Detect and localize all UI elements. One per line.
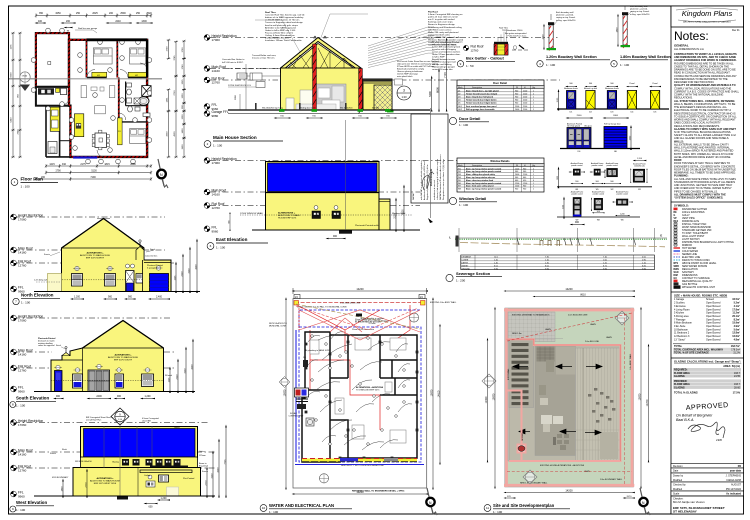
svg-text:28.60: 28.60: [734, 387, 741, 390]
svg-text:D4: D4: [458, 100, 460, 102]
svg-text:1: 1: [533, 100, 534, 102]
svg-text:LAWN: LAWN: [545, 328, 551, 331]
svg-text:PW 14/7/2024: PW 14/7/2024: [726, 488, 742, 491]
svg-text:SYMBOLS:: SYMBOLS:: [674, 204, 689, 208]
svg-text:N: N: [642, 501, 645, 505]
svg-text:ERF 5075 WEST SIDE: ERF 5075 WEST SIDE: [94, 483, 117, 485]
svg-text:7715: 7715: [443, 72, 447, 78]
svg-text:10: 10: [262, 506, 266, 510]
svg-text:Flat Roof:: Flat Roof:: [428, 11, 438, 14]
svg-text:Box gutter waterproofed: Box gutter waterproofed: [505, 32, 526, 35]
svg-text:W2: W2: [458, 171, 461, 173]
svg-text:N: N: [160, 173, 163, 177]
svg-text:Fascia: Fascia: [50, 453, 57, 455]
svg-text:1315: 1315: [182, 79, 184, 85]
svg-text:1 : 100: 1 : 100: [459, 203, 469, 207]
svg-text:9960: 9960: [18, 495, 25, 499]
svg-text:NEW 1.8m: NEW 1.8m: [512, 333, 522, 335]
svg-text:1: 1: [533, 189, 534, 191]
svg-text:Eng detail: Eng detail: [199, 464, 208, 467]
svg-text:brandering with cornices: brandering with cornices: [265, 37, 290, 40]
svg-text:1: 1: [533, 97, 534, 99]
svg-text:All timber to be SABS approved: All timber to be SABS approved: [265, 26, 297, 29]
svg-text:VP: VP: [674, 218, 678, 220]
svg-text:900: 900: [610, 181, 613, 183]
svg-text:1 : 100: 1 : 100: [21, 301, 31, 305]
svg-text:powder coated: powder coated: [606, 164, 617, 167]
svg-text:900: 900: [515, 93, 518, 95]
svg-text:2100: 2100: [523, 93, 527, 95]
svg-text:1.00: 1.00: [603, 260, 607, 262]
svg-text:TO DWELLING ERF 5075: TO DWELLING ERF 5075: [356, 390, 380, 392]
svg-text:Alum. top hung window powder c: Alum. top hung window powder coated: [466, 188, 502, 191]
svg-text:1 : 100: 1 : 100: [216, 246, 226, 250]
svg-text:Scale: Scale: [673, 493, 680, 496]
svg-text:2220: 2220: [176, 374, 178, 380]
svg-text:3130: 3130: [394, 213, 396, 219]
svg-text:D1: D1: [458, 90, 460, 92]
svg-text:ALTERATIONS +: ALTERATIONS +: [278, 212, 296, 215]
svg-text:onto splash block: onto splash block: [397, 75, 412, 78]
svg-text:4530: 4530: [174, 131, 176, 137]
svg-text:1125: 1125: [168, 377, 170, 382]
svg-text:SWD: SWD: [674, 266, 680, 268]
svg-text:TOTAL % OF SITE COVERAGE: TOTAL % OF SITE COVERAGE: [674, 352, 709, 355]
svg-text:2100: 2100: [523, 100, 527, 102]
svg-text:9.96: 9.96: [603, 268, 607, 270]
svg-text:GD2: GD2: [458, 109, 462, 111]
svg-text:Alum. sliding door glazed safe: Alum. sliding door glazed safety: [466, 173, 496, 176]
svg-text:14160: 14160: [18, 353, 27, 357]
svg-text:1.35: 1.35: [545, 262, 549, 264]
svg-text:900: 900: [333, 235, 338, 238]
svg-text:“SYSTEM SALES OFFICE” GUIDELIN: “SYSTEM SALES OFFICE” GUIDELINES.: [674, 196, 724, 200]
svg-text:14200: 14200: [565, 287, 573, 291]
svg-text:RWG: RWG: [674, 269, 680, 271]
svg-text:Modified: Modified: [673, 488, 683, 491]
svg-text:DISTANCE: DISTANCE: [462, 256, 472, 259]
svg-text:4200: 4200: [191, 364, 193, 370]
svg-text:W4: W4: [575, 189, 578, 191]
svg-text:RETICULATION TO: RETICULATION TO: [269, 322, 287, 325]
svg-text:powder coated: powder coated: [571, 193, 582, 196]
svg-text:2710: 2710: [174, 90, 176, 96]
svg-text:11.2m²: 11.2m²: [732, 311, 740, 315]
svg-text:12760: 12760: [18, 369, 27, 373]
svg-text:14610: 14610: [437, 390, 440, 397]
svg-text:900: 900: [128, 296, 133, 299]
svg-text:1 : 100: 1 : 100: [16, 508, 26, 512]
svg-text:7.35: 7.35: [545, 257, 549, 259]
svg-text:sheet IBR: sheet IBR: [142, 419, 151, 422]
svg-text:1800: 1800: [616, 27, 618, 33]
svg-text:powder coated: powder coated: [571, 164, 582, 167]
svg-text:12760: 12760: [212, 206, 221, 210]
svg-text:DEPTH: DEPTH: [462, 262, 469, 264]
svg-text:1 : 100: 1 : 100: [269, 510, 279, 514]
svg-text:coping on top. Found.: coping on top. Found.: [630, 10, 650, 13]
svg-text:W4 2400x900 top hung: W4 2400x900 top hung: [262, 107, 283, 110]
svg-text:9.96: 9.96: [494, 268, 498, 270]
svg-text:EXISTING HOUSE ALTERATIONS + A: EXISTING HOUSE ALTERATIONS + ADDITIONS: [540, 464, 585, 467]
svg-text:Architectural Profession Act 4: Architectural Profession Act 44 of 2000 …: [423, 162, 426, 200]
svg-text:CAD&A 02/08: CAD&A 02/08: [726, 479, 741, 482]
svg-text:South Elevation: South Elevation: [16, 396, 49, 401]
svg-text:24.55: 24.55: [734, 375, 741, 378]
svg-text:1 : 100: 1 : 100: [16, 404, 26, 408]
svg-text:2100: 2100: [523, 97, 527, 99]
svg-text:450: 450: [523, 180, 526, 182]
svg-text:1.80m Boudary Wall Section: 1.80m Boudary Wall Section: [620, 55, 671, 59]
svg-text:D5: D5: [458, 103, 460, 105]
svg-text:400: 400: [38, 20, 43, 23]
svg-text:Mrs M Jantjie van Vuuren: Mrs M Jantjie van Vuuren: [673, 500, 705, 504]
svg-text:900: 900: [108, 296, 113, 299]
svg-text:2: 2: [533, 93, 534, 95]
svg-text:125mm: 125mm: [199, 455, 206, 457]
svg-text:Baai B.K.A.: Baai B.K.A.: [676, 418, 694, 422]
svg-text:12760: 12760: [212, 81, 221, 85]
svg-text:1: 1: [533, 186, 534, 188]
svg-text:14160: 14160: [212, 69, 221, 73]
svg-text:1.8m BDRY WALL: 1.8m BDRY WALL: [629, 353, 632, 370]
svg-text:Roof line over garage: Roof line over garage: [78, 28, 98, 30]
svg-text:6: 6: [533, 180, 534, 182]
svg-text:900: 900: [515, 177, 518, 179]
svg-text:2500: 2500: [515, 106, 519, 108]
svg-text:34.5m²: 34.5m²: [732, 297, 740, 301]
svg-text:Alum. clerestory window fixed: Alum. clerestory window fixed: [466, 179, 494, 182]
svg-text:W4: W4: [458, 177, 461, 179]
svg-text:undertaken at own risk: undertaken at own risk: [433, 180, 436, 200]
svg-text:8.51: 8.51: [494, 265, 498, 267]
svg-text:4200: 4200: [402, 209, 404, 215]
svg-text:1 : 100: 1 : 100: [493, 510, 503, 514]
svg-text:250: 250: [136, 12, 141, 15]
svg-text:Rev 01: Rev 01: [732, 29, 740, 32]
svg-text:1790: 1790: [55, 170, 61, 173]
svg-text:On Behalf of Bergrivier: On Behalf of Bergrivier: [676, 414, 713, 418]
svg-text:1 : 50: 1 : 50: [466, 64, 474, 68]
svg-text:ALTERATIONS + ADDITIONS: ALTERATIONS + ADDITIONS: [356, 386, 384, 389]
svg-text:SIZE + MAIN HOUSE: ROOMS ETC.: SIZE + MAIN HOUSE: ROOMS ETC. NSDB: [674, 294, 727, 298]
svg-text:2625: 2625: [92, 12, 98, 15]
svg-text:2400: 2400: [515, 174, 519, 176]
svg-text:ARCHITECTURAL DRAUGHTING & PLA: ARCHITECTURAL DRAUGHTING & PLANNING: [683, 21, 731, 24]
svg-text:1740: 1740: [182, 64, 184, 70]
svg-text:1.45: 1.45: [494, 262, 498, 264]
svg-text:900: 900: [515, 171, 518, 173]
svg-text:9.96: 9.96: [642, 268, 646, 270]
svg-text:Alum. top hung window obscure: Alum. top hung window obscure: [466, 176, 495, 179]
svg-text:4920 BOUNDARY: 4920 BOUNDARY: [52, 476, 69, 479]
svg-text:1: 1: [533, 183, 534, 185]
svg-text:2690: 2690: [130, 163, 136, 166]
svg-text:EXISTING 1.8m BDRY WALL: EXISTING 1.8m BDRY WALL: [430, 301, 457, 304]
svg-text:Flash: Flash: [62, 449, 67, 451]
svg-text:min 5° to gutter with sealed: min 5° to gutter with sealed: [428, 18, 455, 21]
svg-text:900: 900: [515, 189, 518, 191]
svg-text:14160: 14160: [212, 193, 221, 197]
svg-text:1300: 1300: [182, 114, 184, 120]
svg-text:1200: 1200: [515, 168, 519, 170]
svg-text:1.8m BOUNDARY WALL: 1.8m BOUNDARY WALL: [600, 478, 623, 481]
svg-text:GEYSER: GEYSER: [522, 432, 524, 441]
svg-text:ADDITIONS TO MAIN HOUSE: ADDITIONS TO MAIN HOUSE: [80, 254, 110, 257]
svg-text:Ceiling: Ceiling: [144, 475, 150, 477]
svg-text:Trussed Rafter roof over,: Trussed Rafter roof over,: [252, 54, 277, 57]
svg-text:Aluminium frame: Aluminium frame: [564, 87, 577, 90]
svg-text:1.20: 1.20: [494, 260, 498, 262]
svg-text:AUGUST: AUGUST: [731, 484, 742, 487]
svg-text:9960: 9960: [18, 390, 25, 394]
svg-text:W5: W5: [596, 189, 599, 191]
svg-text:Alum. fixed pane safety glazed: Alum. fixed pane safety glazed: [466, 185, 494, 188]
svg-text:Modified: Modified: [673, 479, 683, 482]
svg-text:1350: 1350: [182, 93, 184, 99]
svg-text:Door Detail: Door Detail: [459, 116, 480, 121]
svg-text:ADDITIONS TO MAIN HOUSE: ADDITIONS TO MAIN HOUSE: [90, 480, 120, 483]
svg-text:2.0m BUILDING LINE: 2.0m BUILDING LINE: [568, 315, 588, 317]
svg-text:1790: 1790: [167, 46, 169, 52]
svg-text:3250: 3250: [55, 12, 61, 15]
svg-text:2500: 2500: [577, 115, 583, 117]
svg-text:5490: 5490: [428, 91, 432, 97]
svg-text:8.71: 8.71: [603, 265, 607, 267]
svg-text:1,200: 1,200: [161, 497, 168, 500]
svg-text:910: 910: [62, 163, 67, 166]
svg-text:12460: 12460: [485, 396, 488, 403]
svg-text:Window Details: Window Details: [490, 159, 510, 163]
svg-text:2590: 2590: [120, 12, 126, 15]
svg-text:2400: 2400: [515, 109, 519, 111]
svg-text:Panel: Panel: [652, 83, 658, 85]
svg-text:fall 1:60 min to R.W.P.: fall 1:60 min to R.W.P.: [222, 61, 244, 64]
svg-text:17060: 17060: [18, 423, 27, 427]
svg-text:Alum. top hung window powder c: Alum. top hung window powder coated: [466, 182, 502, 185]
svg-text:Sewerage Section: Sewerage Section: [456, 271, 491, 276]
svg-text:6000: 6000: [11, 72, 13, 78]
svg-text:W6 900: W6 900: [372, 108, 380, 110]
svg-text:1800: 1800: [557, 176, 559, 180]
svg-text:Window Detail: Window Detail: [459, 196, 486, 201]
svg-text:1 : 100: 1 : 100: [459, 123, 469, 127]
svg-text:Roll-up garage door chromadek: Roll-up garage door chromadek: [466, 109, 496, 111]
svg-text:12160 WINDOW HEAD: 12160 WINDOW HEAD: [240, 212, 263, 215]
svg-text:plastered + painted,: plastered + painted,: [630, 8, 648, 11]
svg-text:Insulation: 135mm Think Pink A: Insulation: 135mm Think Pink Aerolite: [265, 39, 302, 42]
svg-text:12.8m²: 12.8m²: [732, 331, 740, 335]
svg-text:13 “Stoep”: 13 “Stoep”: [674, 338, 686, 341]
svg-text:G: G: [674, 215, 676, 217]
svg-text:Door Detail: Door Detail: [493, 81, 507, 85]
svg-text:D2: D2: [458, 93, 460, 95]
svg-text:IE: IE: [660, 235, 663, 238]
svg-text:W5: W5: [458, 180, 461, 182]
svg-text:CONTROL UNIT: CONTROL UNIT: [289, 416, 305, 418]
svg-text:Date: Date: [673, 470, 679, 473]
svg-text:Glazing: Glazing: [112, 462, 119, 464]
svg-text:7.10: 7.10: [603, 257, 607, 259]
svg-text:1:20: 1:20: [401, 95, 407, 99]
svg-text:17060: 17060: [22, 76, 28, 78]
svg-text:W6: W6: [458, 183, 461, 185]
svg-text:ALL DIMENSIONS IN mm: ALL DIMENSIONS IN mm: [674, 47, 704, 51]
svg-text:Kingdom Plans: Kingdom Plans: [682, 9, 733, 18]
svg-text:17060: 17060: [212, 161, 221, 165]
svg-text:to Eng. spec 600x250: to Eng. spec 600x250: [556, 19, 576, 22]
svg-text:900: 900: [523, 168, 526, 170]
svg-text:14160: 14160: [18, 251, 27, 255]
svg-text:WP ELECTR CONTROL UNIT: WP ELECTR CONTROL UNIT: [682, 286, 716, 289]
svg-text:Sliding door 2400: Sliding door 2400: [300, 108, 316, 110]
svg-text:ADDITIONS TO MAIN: ADDITIONS TO MAIN: [278, 214, 300, 217]
svg-text:GD: GD: [614, 151, 618, 153]
svg-text:2.0m BLD LINE: 2.0m BLD LINE: [585, 341, 600, 343]
svg-text:2770: 2770: [85, 482, 87, 488]
svg-text:4.05: 4.05: [642, 257, 646, 259]
svg-text:7715: 7715: [224, 459, 226, 465]
svg-text:1.20m Boudary Wall Section: 1.20m Boudary Wall Section: [546, 55, 597, 59]
svg-text:W8: W8: [458, 189, 461, 191]
svg-text:ST HELENABAY: ST HELENABAY: [673, 509, 698, 513]
svg-text:1: 1: [533, 103, 534, 105]
svg-text:1 : 100: 1 : 100: [546, 63, 556, 67]
svg-text:17060: 17060: [18, 319, 27, 323]
svg-text:Roll Up Garage Door: Roll Up Garage Door: [604, 124, 621, 126]
svg-text:14200: 14200: [356, 287, 364, 291]
svg-text:2400: 2400: [96, 395, 102, 398]
svg-text:Plst+Painted: Plst+Painted: [183, 477, 194, 480]
svg-text:overall Roof Plan: overall Roof Plan: [86, 419, 101, 421]
svg-text:1400: 1400: [182, 128, 184, 134]
svg-text:31.2%: 31.2%: [733, 352, 741, 355]
svg-text:200: 200: [109, 12, 114, 15]
svg-text:Main House Section: Main House Section: [213, 135, 257, 140]
svg-text:RETAINING WALL TO ENGINEERS DE: RETAINING WALL TO ENGINEERS DETAIL + SPE…: [352, 490, 405, 493]
svg-text:4.8m²: 4.8m²: [734, 337, 741, 341]
svg-text:9.96: 9.96: [545, 268, 549, 270]
svg-text:Concrete tiles: Concrete tiles: [145, 255, 157, 258]
svg-text:5130: 5130: [91, 170, 97, 173]
svg-text:Alum. top hung window powder c: Alum. top hung window powder coated: [466, 170, 502, 173]
svg-text:900: 900: [523, 189, 526, 191]
svg-text:GLAZING CALCULATIONS incl. Gar: GLAZING CALCULATIONS incl. Garage and “S…: [674, 360, 741, 364]
svg-text:battens o/c to SABS approved u: battens o/c to SABS approved underlay: [265, 16, 304, 19]
svg-text:900: 900: [56, 395, 61, 398]
svg-text:8.2m²: 8.2m²: [734, 317, 741, 321]
svg-text:Purlin 50x76 on truss: Purlin 50x76 on truss: [508, 34, 527, 37]
svg-text:Panel: Panel: [629, 83, 635, 85]
svg-text:EXISTING DRIVEWAY TO REMAIN AS: EXISTING DRIVEWAY TO REMAIN AS IS: [512, 314, 550, 317]
svg-text:GLAZING: GLAZING: [674, 387, 685, 390]
svg-text:2100: 2100: [562, 205, 564, 209]
svg-text:19/6: 19/6: [716, 438, 722, 442]
svg-text:200: 200: [66, 20, 71, 23]
svg-text:4.1m²: 4.1m²: [734, 304, 741, 308]
svg-text:Finial: Finial: [150, 249, 155, 251]
svg-text:4200: 4200: [195, 264, 197, 270]
svg-text:Designation or name per clause: Designation or name per clause 1 (1)(b) …: [442, 158, 445, 200]
svg-text:600: 600: [523, 177, 526, 179]
svg-text:1790: 1790: [182, 47, 184, 53]
svg-text:powder coated: powder coated: [617, 193, 628, 196]
svg-text:As indicated: As indicated: [726, 493, 741, 496]
svg-text:NEW GULLY + RE TO EXISTING SEW: NEW GULLY + RE TO EXISTING SEWER LINE: [341, 465, 384, 467]
svg-text:to Eng. spec 600x250: to Eng. spec 600x250: [630, 13, 650, 16]
svg-text:12760: 12760: [18, 469, 27, 473]
svg-text:1125: 1125: [174, 275, 176, 280]
svg-text:1.2m bdry wall: 1.2m bdry wall: [34, 280, 47, 282]
svg-text:250: 250: [76, 12, 81, 15]
svg-text:1: 1: [533, 90, 534, 92]
svg-text:LAWN: LAWN: [590, 323, 596, 326]
svg-text:GENERAL: GENERAL: [674, 44, 689, 48]
svg-text:19070: 19070: [638, 393, 641, 400]
svg-text:Revision: Revision: [673, 465, 683, 468]
svg-text:1200: 1200: [542, 34, 544, 40]
svg-text:Fascia: Fascia: [202, 471, 209, 473]
svg-text:600: 600: [515, 180, 518, 182]
svg-text:Alum. top hung window powder c: Alum. top hung window powder coated: [466, 167, 502, 170]
svg-text:ERF 5075 NORTH: ERF 5075 NORTH: [86, 258, 105, 260]
svg-text:1,200: 1,200: [74, 296, 81, 299]
svg-text:LEVEL AND BRICKFORCE EVERY 4th: LEVEL AND BRICKFORCE EVERY 4th COURSE.: [674, 155, 731, 159]
svg-text:2900: 2900: [18, 129, 20, 135]
svg-text:DIM: DIM: [674, 275, 678, 277]
svg-text:Floor Plan: Floor Plan: [21, 177, 44, 182]
svg-text:East Elevation: East Elevation: [216, 237, 248, 242]
svg-text:TOTAL % GLAZING: TOTAL % GLAZING: [674, 391, 698, 395]
svg-text:2: 2: [533, 168, 534, 170]
svg-text:plastered + painted,: plastered + painted,: [556, 14, 574, 17]
svg-text:AREA: SQ.(m): AREA: SQ.(m): [723, 365, 740, 368]
svg-text:Fascia: Fascia: [44, 254, 51, 256]
svg-text:3745: 3745: [174, 55, 176, 61]
svg-text:37 min supply Point of Entry,: 37 min supply Point of Entry, Weigand: [355, 320, 389, 323]
svg-text:NEW 1.8m BOUNDARY WALL: NEW 1.8m BOUNDARY WALL: [520, 482, 548, 485]
svg-text:900: 900: [596, 181, 599, 183]
svg-text:900: 900: [575, 221, 580, 224]
svg-text:2100: 2100: [523, 106, 527, 108]
svg-text:1900: 1900: [182, 144, 184, 150]
svg-text:3: 3: [533, 171, 534, 173]
svg-text:1.15: 1.15: [642, 262, 646, 264]
svg-text:14160: 14160: [18, 453, 27, 457]
svg-text:North Elevation: North Elevation: [21, 293, 54, 298]
svg-text:1 : 100: 1 : 100: [213, 144, 223, 148]
svg-text:HOUSE ERF 5075: HOUSE ERF 5075: [278, 218, 297, 220]
svg-text:MUNICIPAL CONN: MUNICIPAL CONN: [269, 325, 287, 328]
svg-text:1815: 1815: [104, 163, 110, 166]
svg-text:17060: 17060: [212, 38, 221, 42]
svg-text:W6: W6: [621, 220, 624, 222]
svg-text:2100: 2100: [523, 174, 527, 176]
svg-text:colour on approval: colour on approval: [38, 345, 55, 347]
svg-text:coping on top. Found.: coping on top. Found.: [556, 16, 576, 19]
svg-text:W7: W7: [458, 186, 461, 188]
svg-text:19070: 19070: [430, 389, 433, 396]
svg-text:9880: 9880: [212, 114, 219, 118]
svg-text:Walls: 280 cavity wall plaster: Walls: 280 cavity wall plastered: [428, 31, 459, 34]
svg-text:1200: 1200: [515, 186, 519, 188]
svg-text:EXIST WALL: EXIST WALL: [507, 367, 510, 380]
svg-text:1: 1: [533, 174, 534, 176]
svg-text:2400: 2400: [613, 115, 619, 117]
svg-text:Finial: Finial: [56, 345, 61, 347]
svg-text:600: 600: [149, 506, 154, 509]
svg-text:2,400: 2,400: [156, 296, 163, 299]
